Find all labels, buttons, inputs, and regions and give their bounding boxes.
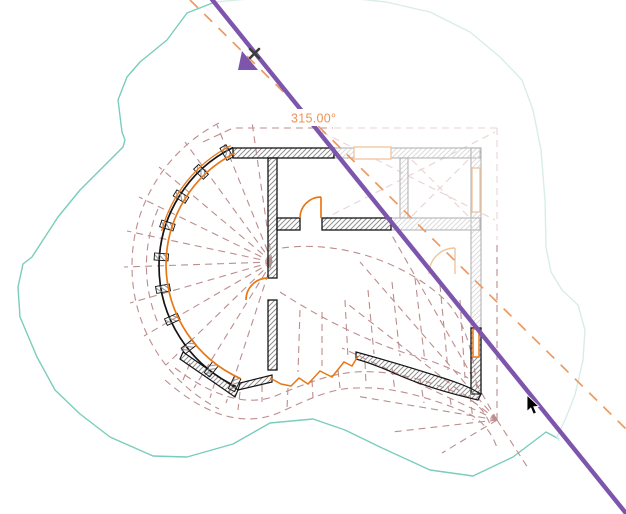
drawing-canvas[interactable]: 315.00° <box>0 0 626 514</box>
curtain-wall-outer-trim[interactable] <box>162 146 231 231</box>
ghost-window-right <box>472 168 480 212</box>
site-boundary[interactable] <box>18 0 585 476</box>
roof-pattern[interactable] <box>124 122 528 468</box>
angle-readout: 315.00° <box>289 109 349 126</box>
ghost-door-swing <box>429 248 455 274</box>
fan-rays-right-corner <box>342 232 528 468</box>
door-swing-top[interactable] <box>300 197 321 218</box>
ghost-walls <box>334 147 481 328</box>
curved-wall-arc[interactable] <box>159 148 236 387</box>
rotate-origin-marker <box>238 49 259 70</box>
roof-sweep-curves <box>280 246 477 390</box>
door-swing-left[interactable] <box>246 278 268 300</box>
curtain-wall-panels-arc[interactable] <box>166 153 241 379</box>
modified-elements[interactable] <box>162 146 479 386</box>
rotation-ray[interactable] <box>190 0 626 429</box>
angle-readout-text: 315.00° <box>291 112 336 126</box>
roof-top-boundary <box>203 128 333 142</box>
ghost-window-top <box>354 147 391 159</box>
